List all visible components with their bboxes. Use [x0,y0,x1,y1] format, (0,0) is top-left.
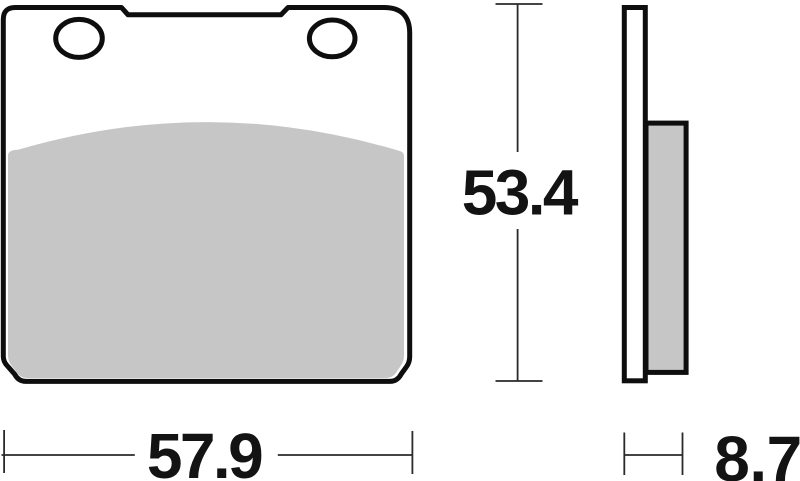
svg-text:8.7: 8.7 [714,423,800,481]
svg-text:53.4: 53.4 [462,157,579,229]
svg-text:57.9: 57.9 [147,420,262,481]
